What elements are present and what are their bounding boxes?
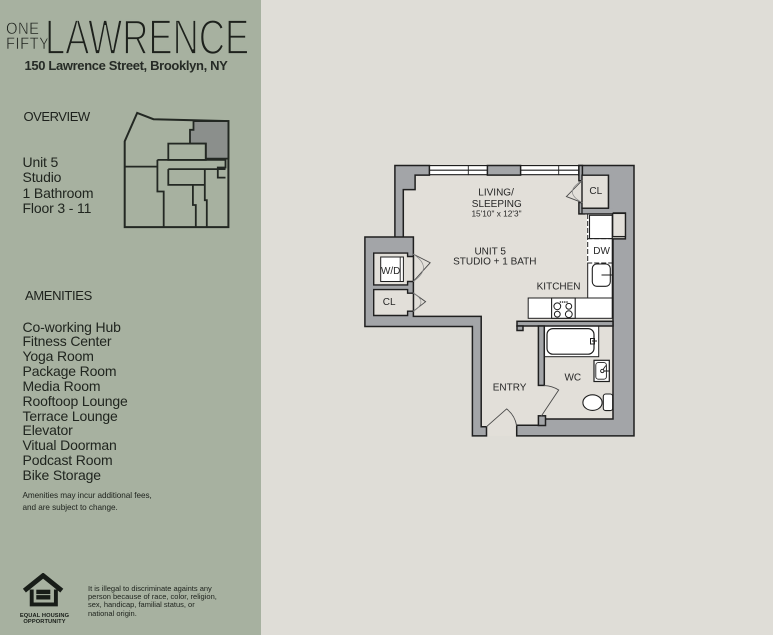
svg-text:LIVING/: LIVING/ — [478, 188, 514, 199]
svg-text:STUDIO + 1 BATH: STUDIO + 1 BATH — [453, 257, 536, 268]
svg-text:15'10" x 12'3": 15'10" x 12'3" — [471, 208, 521, 218]
svg-text:CL: CL — [589, 186, 602, 197]
svg-text:CL: CL — [383, 297, 396, 308]
svg-text:ENTRY: ENTRY — [493, 383, 527, 394]
svg-text:KITCHEN: KITCHEN — [537, 281, 581, 292]
svg-text:WC: WC — [564, 372, 581, 383]
svg-text:DW: DW — [593, 246, 610, 257]
svg-text:W/D: W/D — [381, 266, 400, 277]
